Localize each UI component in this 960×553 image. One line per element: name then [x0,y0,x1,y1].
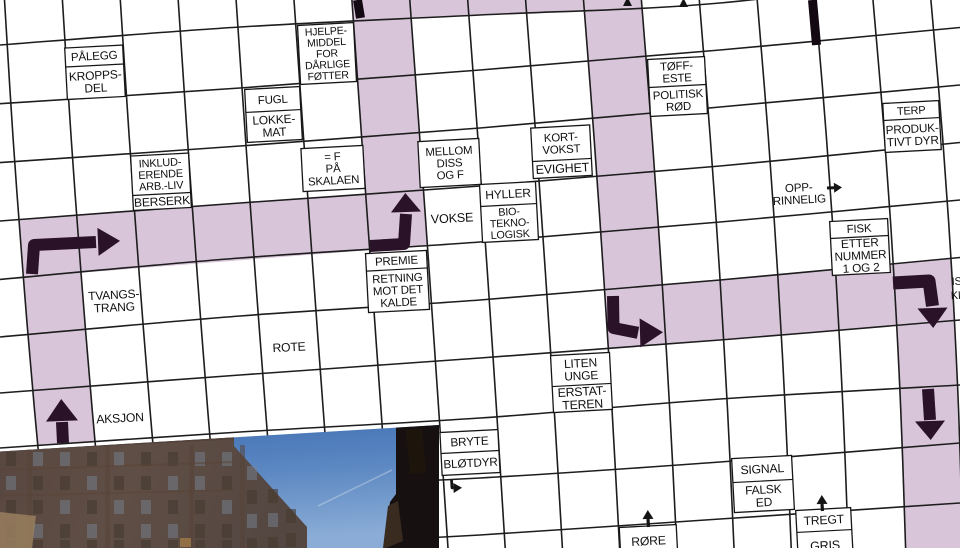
svg-text:FØTTER: FØTTER [307,69,349,83]
svg-text:GRIS: GRIS [810,538,840,548]
svg-text:DEL: DEL [84,80,108,95]
svg-text:EVIGHET: EVIGHET [535,160,590,177]
svg-text:1 OG 2: 1 OG 2 [842,260,880,276]
svg-text:KALDE: KALDE [380,296,418,310]
svg-text:PÅ: PÅ [325,162,341,176]
svg-text:OG F: OG F [436,169,464,182]
svg-text:TERP: TERP [897,104,926,117]
svg-text:KL: KL [951,290,960,303]
svg-text:TEREN: TEREN [562,397,603,413]
svg-text:VOKSE: VOKSE [430,210,473,226]
svg-text:BRYTE: BRYTE [450,434,489,450]
svg-text:RØD: RØD [666,101,692,114]
svg-text:VOKST: VOKST [542,143,581,157]
svg-text:ED: ED [755,495,773,510]
svg-text:FUGL: FUGL [258,94,289,108]
svg-text:BLØTDYR: BLØTDYR [443,455,498,472]
svg-text:HYLLER: HYLLER [485,186,532,202]
svg-text:= F: = F [324,151,341,164]
svg-text:MAT: MAT [262,125,287,140]
svg-text:PÅLEGG: PÅLEGG [71,49,118,64]
svg-text:TRANG: TRANG [93,299,135,315]
svg-text:RØRE: RØRE [631,533,666,548]
svg-text:UNGE: UNGE [564,368,599,384]
svg-text:RINNELIG: RINNELIG [772,192,826,208]
svg-text:ESTE: ESTE [662,72,692,86]
svg-text:TIVT DYR: TIVT DYR [886,133,939,150]
svg-text:ARB.-LIV: ARB.-LIV [139,179,185,193]
svg-text:LOGISK: LOGISK [490,228,531,242]
svg-text:PREMIE: PREMIE [375,254,419,268]
svg-text:FISK: FISK [846,223,872,236]
svg-text:SIGNAL: SIGNAL [740,461,785,477]
svg-text:ROTE: ROTE [272,339,306,355]
svg-text:BERSERK: BERSERK [134,193,191,210]
svg-text:TREGT: TREGT [803,512,845,528]
svg-text:IS: IS [951,276,960,289]
svg-text:AKSJON: AKSJON [96,410,144,426]
